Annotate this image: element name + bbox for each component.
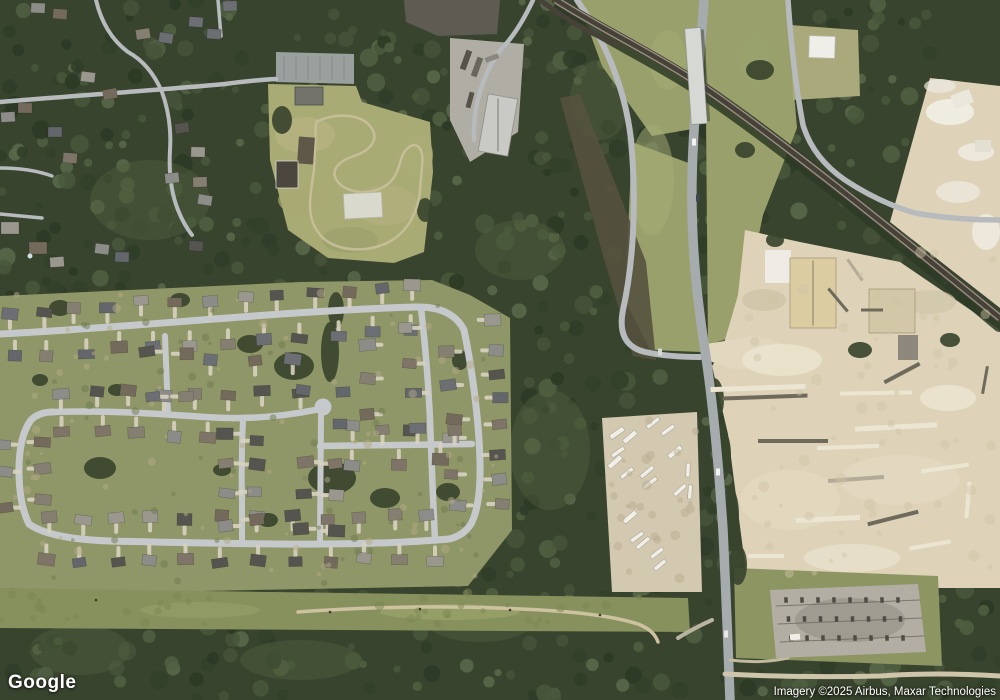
google-logo[interactable]: Google [8,672,76,694]
satellite-map[interactable]: Google Imagery ©2025 Airbus, Maxar Techn… [0,0,1000,700]
satellite-imagery [0,0,1000,700]
imagery-attribution: Imagery ©2025 Airbus, Maxar Technologies [774,686,996,698]
